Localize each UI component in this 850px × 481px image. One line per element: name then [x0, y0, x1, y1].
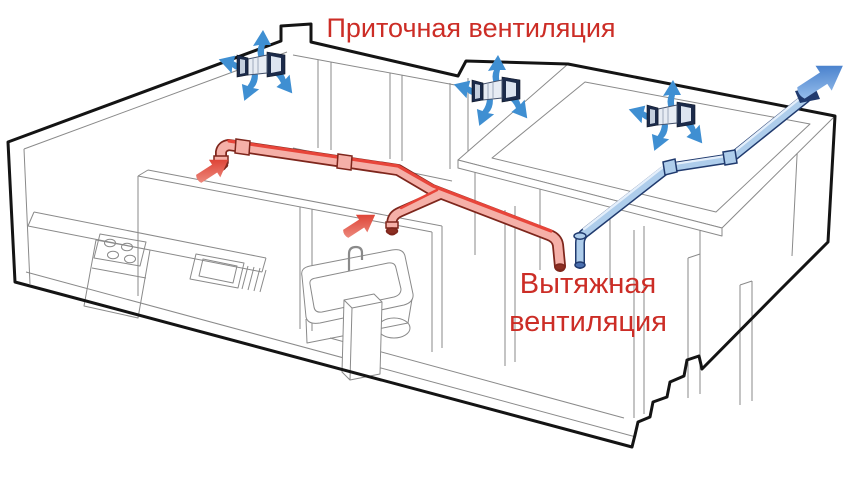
supply-fan-1 [216, 30, 300, 104]
supply-air-arrow-2 [339, 206, 381, 243]
exhaust-riser-joint [574, 233, 586, 239]
apartment-cutaway-svg: Приточная вентиляция Вытяжная вентиляция [0, 0, 850, 481]
ventilation-diagram: Приточная вентиляция Вытяжная вентиляция [0, 0, 850, 481]
exhaust-label-line1: Вытяжная [520, 268, 656, 300]
supply-title: Приточная вентиляция [326, 13, 615, 43]
water-heater [342, 294, 382, 380]
bathroom [302, 247, 413, 380]
kitchen [28, 212, 266, 318]
building-outline [8, 24, 835, 447]
exhaust-label-line2: вентиляция [509, 306, 667, 338]
supply-inlet-mouth-2 [387, 228, 398, 234]
